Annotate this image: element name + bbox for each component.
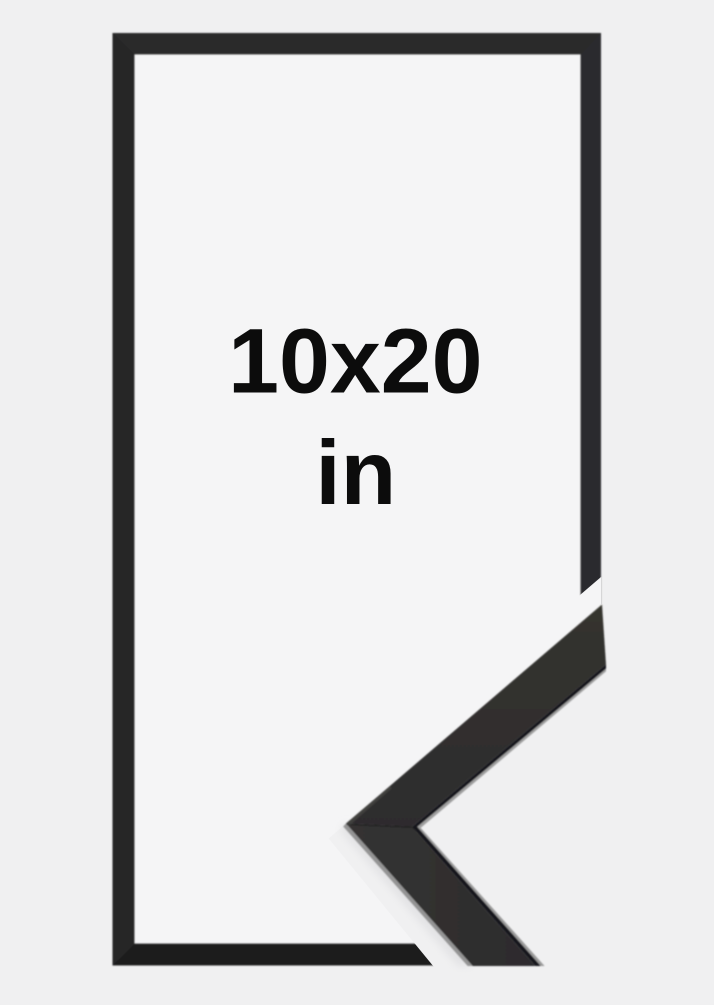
svg-text:in: in [315,423,396,524]
svg-text:10x20: 10x20 [228,311,482,413]
